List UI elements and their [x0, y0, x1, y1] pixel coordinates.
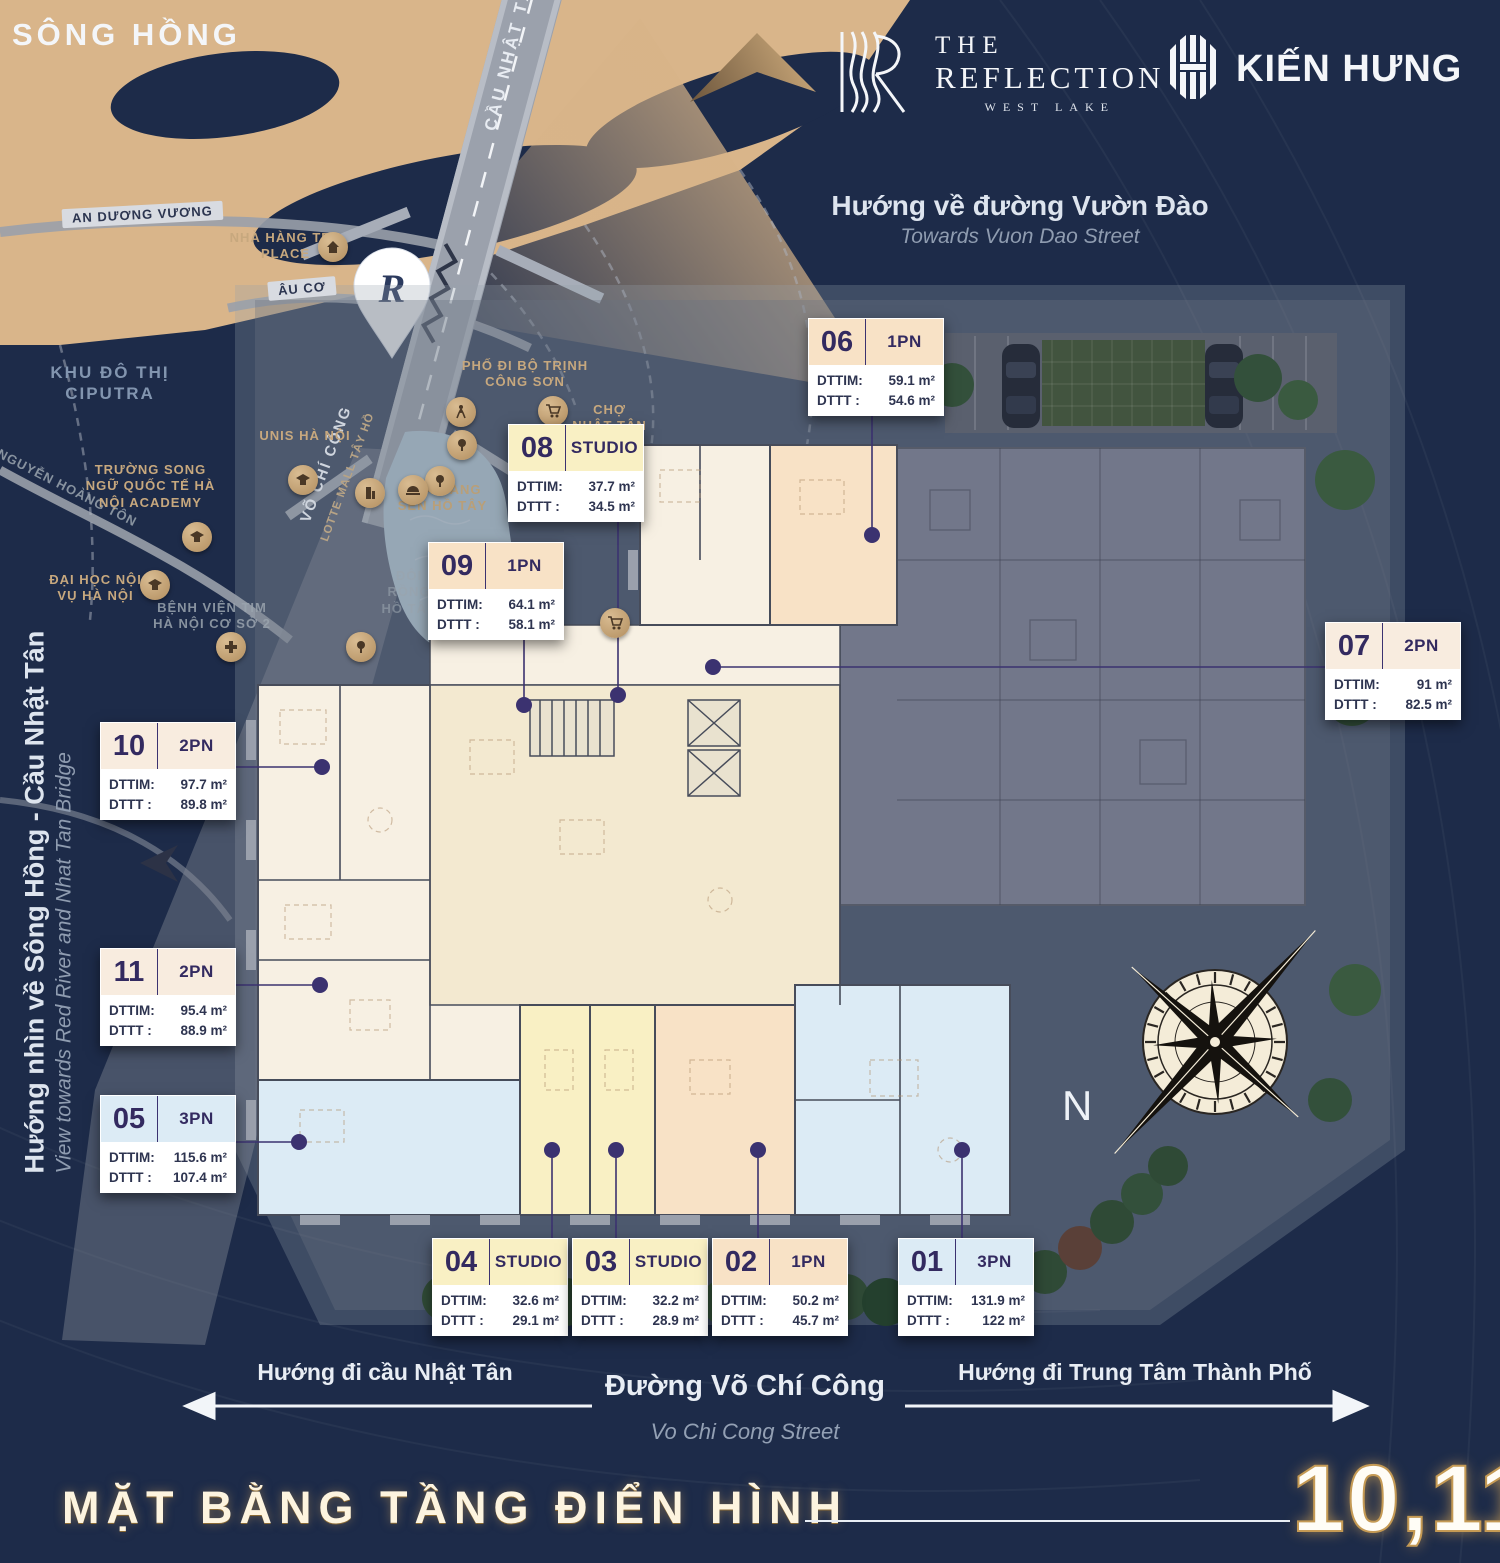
unit-number: 04: [433, 1239, 490, 1285]
unit-number: 06: [809, 319, 866, 365]
unit-number: 02: [713, 1239, 770, 1285]
unit-card-03: 03STUDIODTTIM:32.2 m²DTTT :28.9 m²: [572, 1238, 708, 1336]
area-value: 131.9 m²: [971, 1291, 1025, 1311]
unit-card-header: 072PN: [1326, 623, 1460, 671]
unit-number: 11: [101, 949, 158, 995]
unit-cards-layer: 061PNDTTIM:59.1 m²DTTT :54.6 m²08STUDIOD…: [0, 0, 1500, 1563]
area-value: 64.1 m²: [508, 595, 555, 615]
unit-card-body: DTTIM:32.2 m²DTTT :28.9 m²: [573, 1287, 707, 1335]
unit-card-header: 091PN: [429, 543, 563, 591]
unit-number: 07: [1326, 623, 1383, 669]
unit-type: 3PN: [158, 1096, 235, 1142]
area-row-dttim: DTTIM:95.4 m²: [109, 1001, 227, 1021]
area-value: 88.9 m²: [180, 1021, 227, 1041]
unit-type: STUDIO: [566, 425, 643, 471]
area-label: DTTIM:: [437, 595, 483, 615]
area-label: DTTIM:: [907, 1291, 953, 1311]
area-row-dttt: DTTT :82.5 m²: [1334, 695, 1452, 715]
area-row-dttim: DTTIM:59.1 m²: [817, 371, 935, 391]
area-label: DTTT :: [437, 615, 480, 635]
area-label: DTTT :: [441, 1311, 484, 1331]
area-value: 32.6 m²: [512, 1291, 559, 1311]
area-value: 37.7 m²: [588, 477, 635, 497]
unit-type: 2PN: [158, 949, 235, 995]
unit-card-11: 112PNDTTIM:95.4 m²DTTT :88.9 m²: [100, 948, 236, 1046]
unit-card-body: DTTIM:59.1 m²DTTT :54.6 m²: [809, 367, 943, 415]
area-label: DTTIM:: [109, 775, 155, 795]
area-row-dttt: DTTT :54.6 m²: [817, 391, 935, 411]
unit-number: 03: [573, 1239, 630, 1285]
unit-type: 2PN: [158, 723, 235, 769]
area-value: 29.1 m²: [512, 1311, 559, 1331]
unit-card-body: DTTIM:115.6 m²DTTT :107.4 m²: [101, 1144, 235, 1192]
area-value: 58.1 m²: [508, 615, 555, 635]
area-value: 45.7 m²: [792, 1311, 839, 1331]
area-row-dttt: DTTT :34.5 m²: [517, 497, 635, 517]
unit-card-05: 053PNDTTIM:115.6 m²DTTT :107.4 m²: [100, 1095, 236, 1193]
unit-type: 2PN: [1383, 623, 1460, 669]
unit-card-header: 08STUDIO: [509, 425, 643, 473]
unit-card-header: 112PN: [101, 949, 235, 997]
area-value: 91 m²: [1417, 675, 1452, 695]
area-label: DTTIM:: [517, 477, 563, 497]
unit-card-body: DTTIM:97.7 m²DTTT :89.8 m²: [101, 771, 235, 819]
unit-card-body: DTTIM:131.9 m²DTTT :122 m²: [899, 1287, 1033, 1335]
unit-card-body: DTTIM:37.7 m²DTTT :34.5 m²: [509, 473, 643, 521]
area-value: 122 m²: [982, 1311, 1025, 1331]
unit-number: 10: [101, 723, 158, 769]
area-row-dttt: DTTT :122 m²: [907, 1311, 1025, 1331]
area-label: DTTIM:: [581, 1291, 627, 1311]
unit-card-body: DTTIM:95.4 m²DTTT :88.9 m²: [101, 997, 235, 1045]
area-row-dttim: DTTIM:131.9 m²: [907, 1291, 1025, 1311]
unit-card-06: 061PNDTTIM:59.1 m²DTTT :54.6 m²: [808, 318, 944, 416]
unit-card-08: 08STUDIODTTIM:37.7 m²DTTT :34.5 m²: [508, 424, 644, 522]
area-label: DTTT :: [109, 1168, 152, 1188]
area-row-dttt: DTTT :88.9 m²: [109, 1021, 227, 1041]
unit-card-header: 061PN: [809, 319, 943, 367]
unit-type: 1PN: [866, 319, 943, 365]
poster-root: R: [0, 0, 1500, 1563]
area-value: 54.6 m²: [888, 391, 935, 411]
unit-type: 3PN: [956, 1239, 1033, 1285]
area-row-dttim: DTTIM:97.7 m²: [109, 775, 227, 795]
area-value: 50.2 m²: [792, 1291, 839, 1311]
area-row-dttim: DTTIM:32.6 m²: [441, 1291, 559, 1311]
unit-type: 1PN: [486, 543, 563, 589]
area-row-dttt: DTTT :28.9 m²: [581, 1311, 699, 1331]
area-label: DTTIM:: [441, 1291, 487, 1311]
unit-card-body: DTTIM:50.2 m²DTTT :45.7 m²: [713, 1287, 847, 1335]
area-row-dttim: DTTIM:64.1 m²: [437, 595, 555, 615]
area-row-dttim: DTTIM:37.7 m²: [517, 477, 635, 497]
unit-card-body: DTTIM:32.6 m²DTTT :29.1 m²: [433, 1287, 567, 1335]
area-label: DTTIM:: [109, 1148, 155, 1168]
unit-number: 01: [899, 1239, 956, 1285]
area-value: 115.6 m²: [174, 1148, 227, 1168]
unit-number: 05: [101, 1096, 158, 1142]
area-value: 97.7 m²: [180, 775, 227, 795]
unit-card-09: 091PNDTTIM:64.1 m²DTTT :58.1 m²: [428, 542, 564, 640]
area-label: DTTIM:: [817, 371, 863, 391]
unit-number: 09: [429, 543, 486, 589]
unit-card-body: DTTIM:91 m²DTTT :82.5 m²: [1326, 671, 1460, 719]
unit-card-header: 102PN: [101, 723, 235, 771]
area-row-dttim: DTTIM:115.6 m²: [109, 1148, 227, 1168]
unit-card-header: 013PN: [899, 1239, 1033, 1287]
unit-type: STUDIO: [490, 1239, 567, 1285]
area-label: DTTT :: [721, 1311, 764, 1331]
area-value: 89.8 m²: [180, 795, 227, 815]
area-row-dttt: DTTT :58.1 m²: [437, 615, 555, 635]
unit-number: 08: [509, 425, 566, 471]
area-label: DTTIM:: [1334, 675, 1380, 695]
area-label: DTTIM:: [721, 1291, 767, 1311]
area-label: DTTT :: [517, 497, 560, 517]
area-label: DTTT :: [581, 1311, 624, 1331]
area-value: 34.5 m²: [588, 497, 635, 517]
unit-card-header: 03STUDIO: [573, 1239, 707, 1287]
unit-card-02: 021PNDTTIM:50.2 m²DTTT :45.7 m²: [712, 1238, 848, 1336]
area-value: 82.5 m²: [1405, 695, 1452, 715]
area-value: 107.4 m²: [173, 1168, 227, 1188]
unit-type: STUDIO: [630, 1239, 707, 1285]
unit-card-01: 013PNDTTIM:131.9 m²DTTT :122 m²: [898, 1238, 1034, 1336]
area-label: DTTT :: [1334, 695, 1377, 715]
unit-card-header: 053PN: [101, 1096, 235, 1144]
area-label: DTTIM:: [109, 1001, 155, 1021]
unit-card-body: DTTIM:64.1 m²DTTT :58.1 m²: [429, 591, 563, 639]
area-label: DTTT :: [109, 795, 152, 815]
area-label: DTTT :: [907, 1311, 950, 1331]
area-row-dttim: DTTIM:50.2 m²: [721, 1291, 839, 1311]
unit-card-10: 102PNDTTIM:97.7 m²DTTT :89.8 m²: [100, 722, 236, 820]
unit-type: 1PN: [770, 1239, 847, 1285]
unit-card-header: 021PN: [713, 1239, 847, 1287]
area-row-dttt: DTTT :107.4 m²: [109, 1168, 227, 1188]
area-row-dttim: DTTIM:32.2 m²: [581, 1291, 699, 1311]
area-value: 95.4 m²: [180, 1001, 227, 1021]
area-label: DTTT :: [817, 391, 860, 411]
unit-card-07: 072PNDTTIM:91 m²DTTT :82.5 m²: [1325, 622, 1461, 720]
area-value: 32.2 m²: [652, 1291, 699, 1311]
area-value: 59.1 m²: [888, 371, 935, 391]
area-row-dttt: DTTT :89.8 m²: [109, 795, 227, 815]
area-row-dttt: DTTT :45.7 m²: [721, 1311, 839, 1331]
area-value: 28.9 m²: [652, 1311, 699, 1331]
area-label: DTTT :: [109, 1021, 152, 1041]
unit-card-04: 04STUDIODTTIM:32.6 m²DTTT :29.1 m²: [432, 1238, 568, 1336]
unit-card-header: 04STUDIO: [433, 1239, 567, 1287]
area-row-dttt: DTTT :29.1 m²: [441, 1311, 559, 1331]
area-row-dttim: DTTIM:91 m²: [1334, 675, 1452, 695]
